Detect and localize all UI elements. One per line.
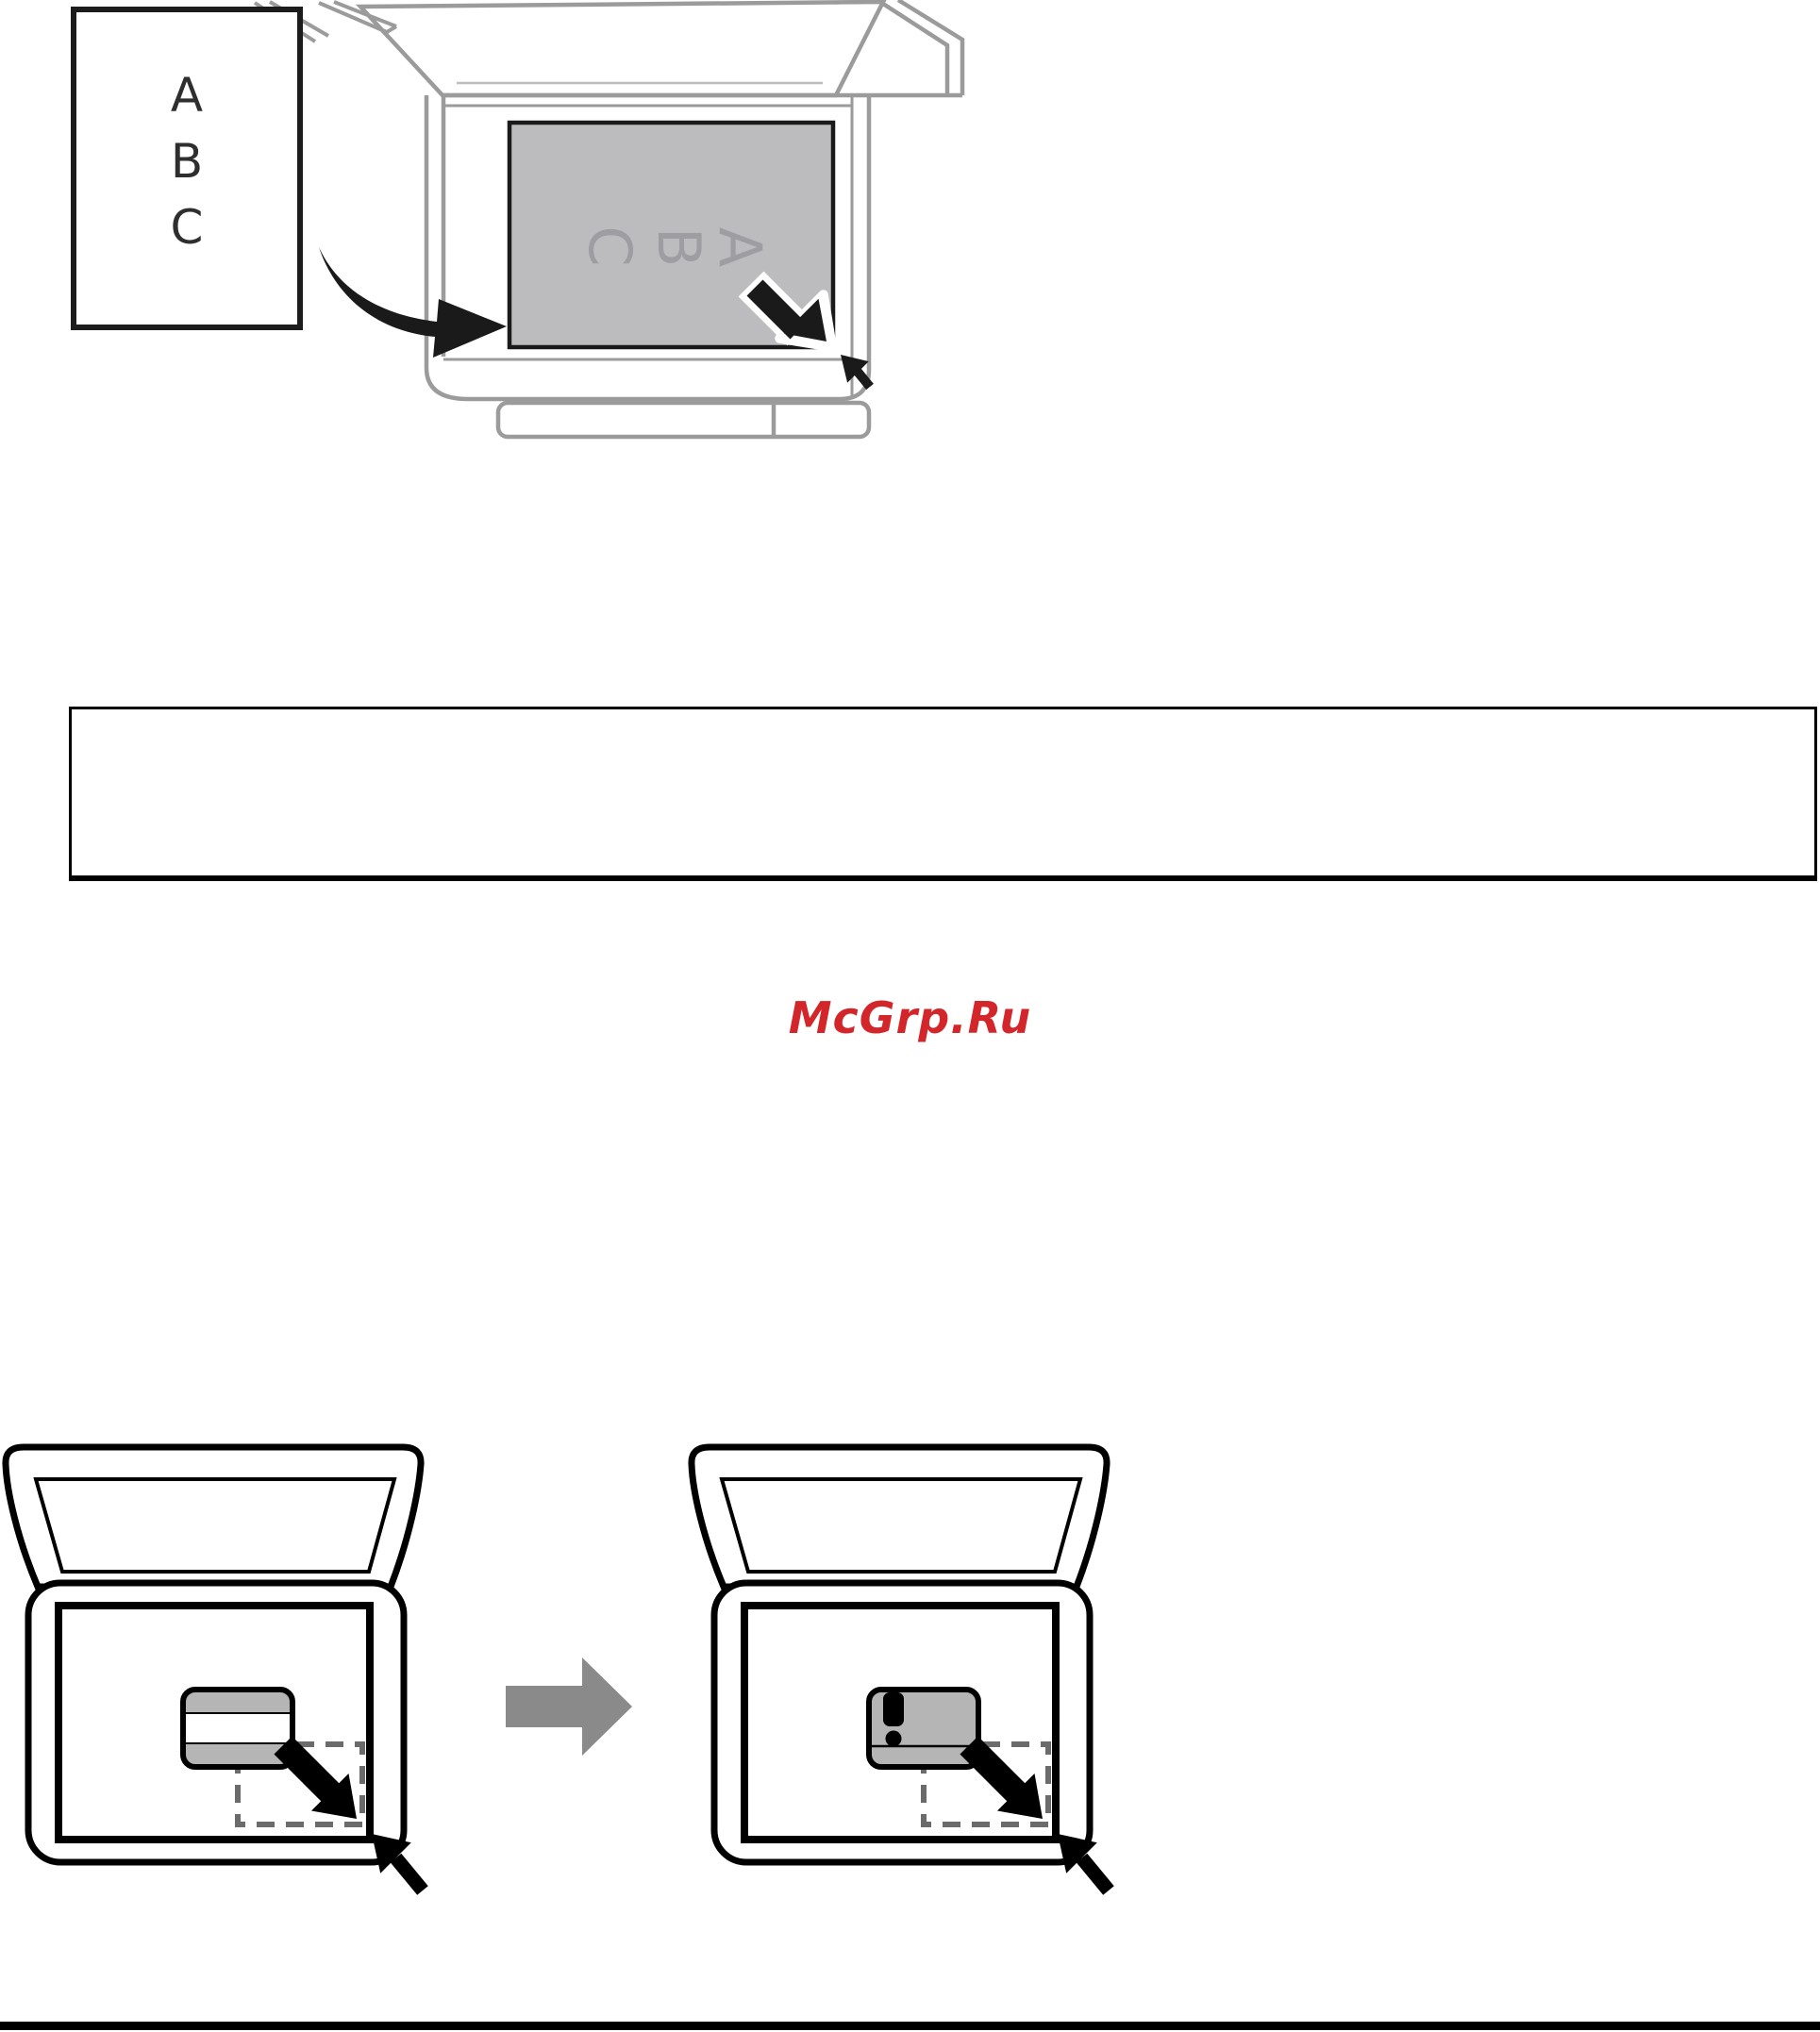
watermark: McGrp.Ru — [0, 992, 1820, 1043]
curved-placement-arrow — [319, 247, 507, 358]
id-card-placement-svg — [0, 1424, 1132, 1915]
scanner-lid — [255, 0, 962, 95]
right-cursor-icon — [1058, 1834, 1109, 1890]
id-card-placement-illustration — [0, 1424, 1132, 1915]
corner-cursor-icon — [841, 355, 870, 387]
document-letter-b: B — [171, 134, 203, 189]
watermark-link[interactable]: McGrp.Ru — [789, 992, 1032, 1043]
glass-letter-c: C — [576, 225, 644, 266]
original-document: A B C — [74, 9, 300, 327]
document-letter-a: A — [171, 68, 203, 123]
card-back-mark — [883, 1692, 904, 1726]
left-cursor-icon — [372, 1834, 423, 1890]
right-lid-inner — [722, 1479, 1080, 1572]
lid-surface — [360, 2, 883, 95]
lid-right-post — [883, 0, 962, 95]
glass-letter-b: B — [644, 227, 713, 268]
left-scanner — [6, 1447, 423, 1890]
page-bottom-rule — [0, 2022, 1820, 2030]
note-box — [69, 707, 1817, 881]
right-scanner — [692, 1447, 1109, 1890]
glass-letter-a: A — [706, 227, 775, 267]
scanner-glass-placement-svg: C B A A B C — [0, 0, 1000, 443]
left-lid-inner — [36, 1479, 394, 1572]
document-letter-c: C — [171, 200, 204, 255]
scanner-glass-placement-illustration: C B A A B C — [0, 0, 1000, 443]
front-tray — [498, 403, 869, 437]
transition-arrow — [506, 1657, 632, 1756]
